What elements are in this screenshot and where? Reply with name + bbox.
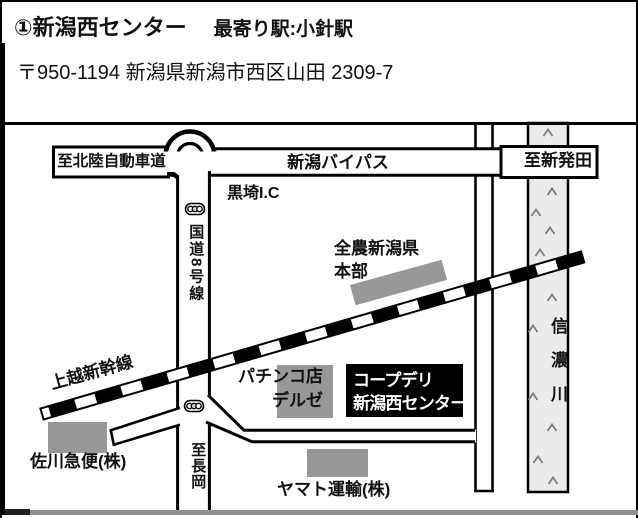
label-sagawa-express: 佐川急便(株) [30, 451, 126, 474]
traffic-signal-icon [186, 204, 205, 215]
coop-deli-center-box: コープデリ 新潟西センター [346, 364, 463, 417]
label-zennoh-hq: 全農新潟県 本部 [334, 237, 419, 283]
coop-label-line2: 新潟西センター [353, 392, 463, 415]
label-yamato-transport: ヤマト運輸(株) [277, 479, 390, 502]
label-to-nagaoka: 至長岡 [187, 442, 207, 490]
label-to-hokuriku-expressway: 至北陸自動車道 [54, 147, 169, 177]
label-to-shibata: 至新発田 [501, 146, 592, 177]
label-route8: 国道8号線 [185, 224, 205, 302]
sagawa-building [48, 422, 107, 453]
page-left-edge-bar [0, 43, 5, 515]
header-divider [0, 122, 638, 125]
side-road [110, 407, 180, 446]
label-niigata-bypass: 新潟バイパス [282, 152, 394, 175]
page-bottom-divider [0, 510, 638, 515]
traffic-signal-icon [185, 401, 204, 412]
label-shinano-river: 信濃川 [545, 317, 568, 419]
label-pachinko-delze: パチンコ店 デルゼ [228, 365, 323, 413]
label-kurosaki-ic: 黒埼I.C [227, 183, 279, 205]
access-map-page: ①新潟西センター最寄り駅:小針駅 〒950-1194 新潟県新潟市西区山田 23… [0, 0, 638, 518]
narrow-road [474, 123, 494, 491]
coop-label-line1: コープデリ [353, 369, 463, 392]
yamato-building [307, 449, 368, 477]
